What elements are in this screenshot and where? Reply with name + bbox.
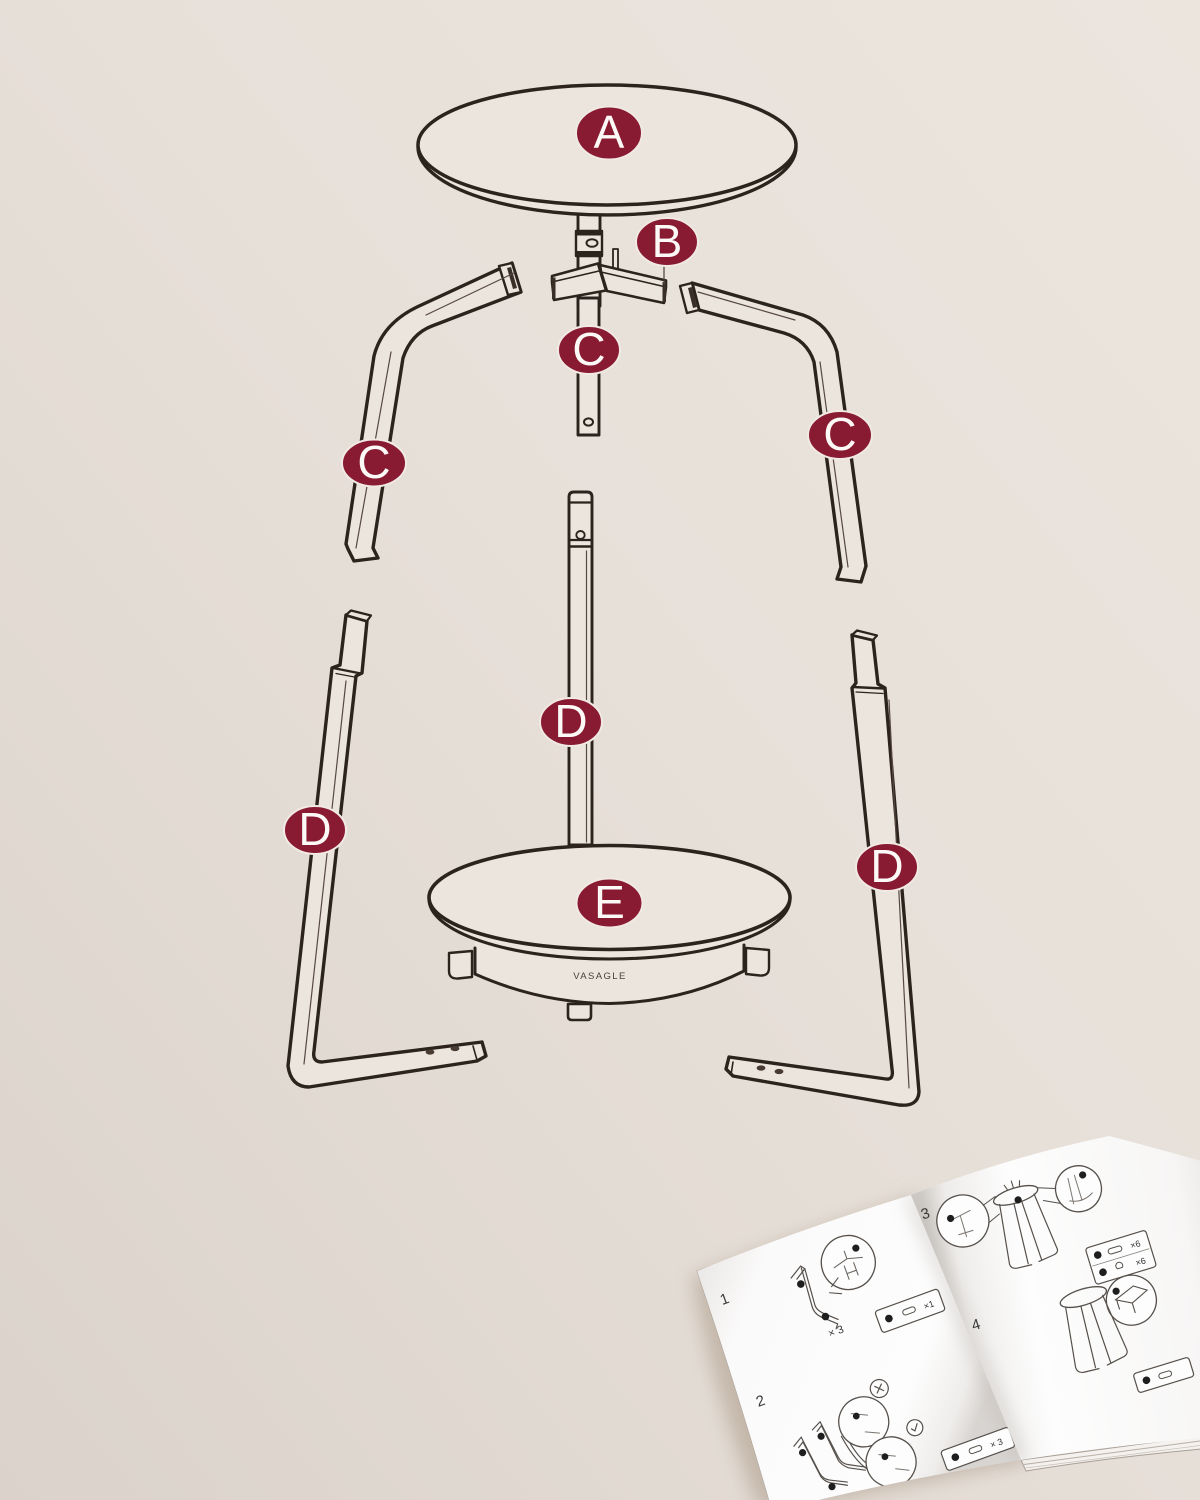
svg-text:C: C <box>572 323 605 375</box>
svg-text:A: A <box>594 106 625 158</box>
svg-text:E: E <box>594 876 625 928</box>
svg-text:D: D <box>870 840 903 892</box>
svg-text:B: B <box>652 215 683 267</box>
svg-text:C: C <box>823 408 856 460</box>
svg-text:D: D <box>298 803 331 855</box>
svg-text:VASAGLE: VASAGLE <box>573 971 626 982</box>
svg-text:D: D <box>554 695 587 747</box>
svg-text:C: C <box>357 436 390 488</box>
